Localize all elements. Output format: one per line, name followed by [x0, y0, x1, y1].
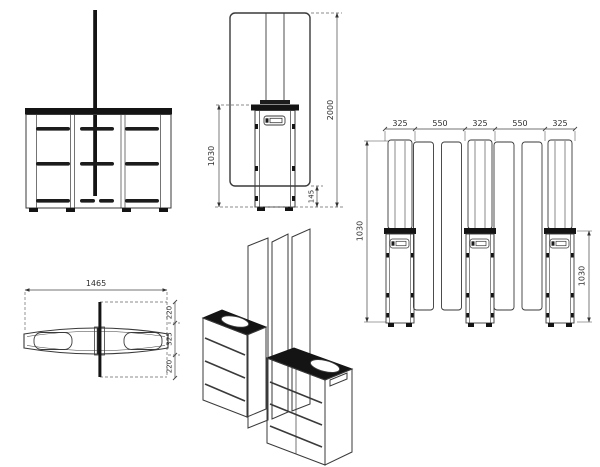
end-recess-left: [34, 333, 72, 350]
dim-plan-depths: 220 325 220: [166, 300, 181, 380]
drawing-svg: 1030 2000 145: [0, 0, 600, 467]
dim-label: 325: [472, 119, 487, 128]
dim-array-left-height: 1030: [356, 141, 389, 322]
dim-label: 325: [552, 119, 567, 128]
dim-array-widths: 325 550 325 550 325: [383, 119, 577, 141]
technical-drawing-sheet: 1030 2000 145: [0, 0, 600, 467]
swing-zone: [100, 302, 167, 377]
front-view: [25, 10, 172, 212]
dim-label: 1030: [207, 146, 216, 166]
dim-label: 1465: [86, 279, 106, 288]
dim-label: 550: [512, 119, 527, 128]
cabinet-top-band: [25, 108, 172, 115]
dim-array-right-height: 1030: [577, 231, 592, 322]
dim-label: 1030: [578, 266, 587, 286]
plan-view: 1465: [24, 279, 180, 380]
perspective-view: [203, 229, 352, 465]
gate-unit: [544, 140, 576, 327]
cabinet-3d-left: [203, 310, 266, 417]
dim-label: 145: [308, 190, 316, 203]
cabinet-top-band-side: [251, 105, 299, 111]
dim-label: 2000: [326, 100, 335, 120]
pole-base: [260, 100, 290, 104]
louvre-slots: [36, 127, 159, 203]
wing-panels: [414, 142, 543, 310]
dim-label: 550: [432, 119, 447, 128]
dim-label: 1030: [356, 221, 365, 241]
dim-side-floor-gap: 145: [308, 186, 324, 207]
cabinet-feet: [29, 208, 168, 212]
gate-unit: [384, 140, 416, 327]
gate-unit: [464, 140, 496, 327]
dim-plan-width: 1465: [25, 279, 167, 330]
card-reader: [264, 116, 285, 125]
cabinet-feet-side: [257, 207, 293, 211]
dim-label: 220: [166, 360, 174, 373]
side-view: 1030 2000 145: [207, 13, 344, 211]
dim-label: 220: [166, 306, 174, 319]
dim-side-cabinet-height: 1030: [207, 105, 251, 207]
dim-label: 325: [392, 119, 407, 128]
glass-panel-side: [230, 13, 310, 186]
cabinet-3d-right: [267, 348, 352, 465]
array-view: 325 550 325 550 325 1030 1030: [356, 119, 593, 327]
dim-side-total-height: 2000: [311, 13, 342, 207]
gate-pole: [93, 10, 97, 196]
glass-panel-plan: [98, 302, 101, 377]
cabinet-plan-outline: [24, 327, 168, 355]
dim-label: 325: [166, 332, 174, 345]
hinge-tabs: [255, 124, 295, 201]
gate-units: [384, 140, 576, 327]
